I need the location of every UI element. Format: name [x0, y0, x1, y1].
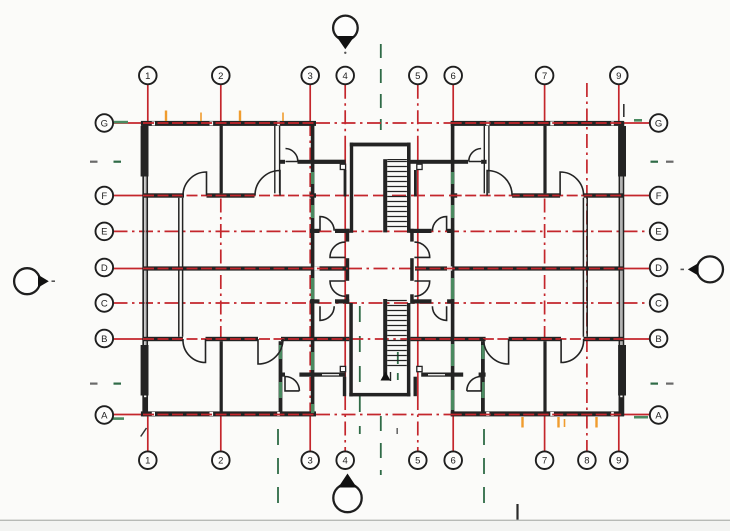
svg-text:F: F — [656, 191, 662, 202]
svg-text:9: 9 — [616, 456, 621, 467]
svg-text:4: 4 — [343, 456, 348, 467]
svg-text:2: 2 — [218, 71, 223, 82]
svg-text:4: 4 — [343, 71, 348, 82]
svg-text:D: D — [101, 263, 108, 274]
svg-text:F: F — [101, 191, 107, 202]
svg-text:9: 9 — [616, 71, 621, 82]
svg-text:1: 1 — [145, 456, 150, 467]
svg-text:A: A — [655, 410, 662, 421]
svg-text:B: B — [655, 334, 661, 345]
svg-text:8: 8 — [584, 456, 589, 467]
svg-text:E: E — [655, 227, 661, 238]
svg-text:7: 7 — [542, 71, 547, 82]
svg-text:G: G — [655, 118, 662, 129]
svg-text:C: C — [655, 298, 662, 309]
svg-text:6: 6 — [451, 456, 456, 467]
svg-text:E: E — [101, 227, 107, 238]
svg-text:B: B — [101, 334, 107, 345]
svg-text:G: G — [101, 118, 108, 129]
svg-text:5: 5 — [415, 456, 420, 467]
svg-text:5: 5 — [415, 71, 420, 82]
svg-text:2: 2 — [218, 456, 223, 467]
svg-text:A: A — [101, 410, 108, 421]
svg-text:6: 6 — [451, 71, 456, 82]
svg-text:7: 7 — [542, 456, 547, 467]
svg-text:C: C — [101, 298, 108, 309]
svg-text:3: 3 — [308, 71, 313, 82]
svg-text:1: 1 — [145, 71, 150, 82]
svg-text:3: 3 — [308, 456, 313, 467]
svg-text:D: D — [655, 263, 662, 274]
